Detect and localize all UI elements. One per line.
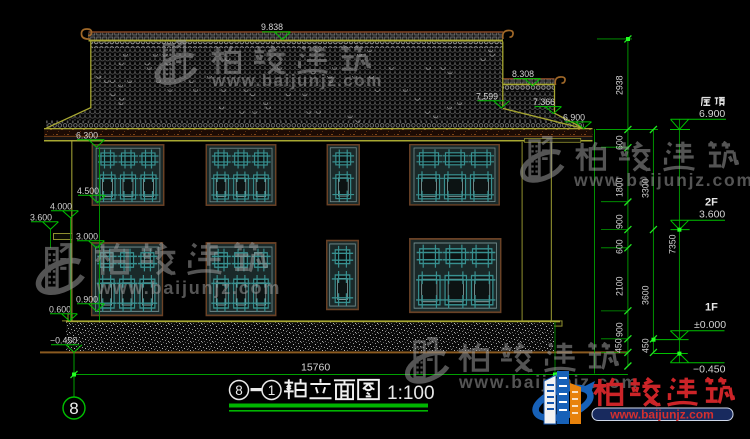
svg-text:6.300: 6.300: [76, 130, 98, 140]
svg-text:7.366: 7.366: [533, 97, 555, 107]
svg-text:4.000: 4.000: [50, 201, 72, 211]
svg-text:3.600: 3.600: [699, 209, 725, 221]
svg-text:4.500: 4.500: [77, 186, 99, 196]
svg-text:900: 900: [615, 214, 625, 229]
svg-text:www.baijunjz.com: www.baijunjz.com: [96, 278, 281, 298]
svg-text:450: 450: [641, 338, 651, 353]
svg-text:6.900: 6.900: [563, 113, 585, 123]
svg-text:0.600: 0.600: [49, 304, 71, 314]
svg-text:450: 450: [614, 338, 624, 353]
svg-text:8.308: 8.308: [512, 69, 534, 79]
svg-text:1: 1: [268, 383, 276, 398]
svg-text:600: 600: [615, 239, 625, 254]
svg-text:9.838: 9.838: [261, 22, 283, 32]
svg-text:3.600: 3.600: [30, 212, 52, 222]
svg-text:−0.450: −0.450: [693, 364, 726, 376]
svg-text:www.baijunjz.com: www.baijunjz.com: [573, 170, 750, 190]
svg-text:8: 8: [235, 383, 243, 398]
svg-text:1:100: 1:100: [387, 383, 435, 404]
svg-text:1F: 1F: [705, 302, 718, 314]
svg-text:7.599: 7.599: [476, 91, 498, 101]
svg-text:0.900: 0.900: [76, 294, 98, 304]
svg-text:8: 8: [69, 399, 78, 418]
svg-text:15760: 15760: [301, 361, 330, 373]
svg-text:3.000: 3.000: [76, 231, 98, 241]
svg-text:3600: 3600: [641, 285, 651, 305]
svg-text:www.baijunjz.com: www.baijunjz.com: [211, 71, 383, 90]
svg-text:6.900: 6.900: [699, 108, 725, 120]
svg-text:±0.000: ±0.000: [694, 319, 726, 331]
svg-text:2100: 2100: [615, 276, 625, 296]
svg-text:2F: 2F: [705, 197, 718, 209]
svg-text:www.baijunjz.com: www.baijunjz.com: [609, 407, 714, 421]
svg-text:2938: 2938: [615, 75, 625, 95]
svg-text:7350: 7350: [668, 234, 678, 254]
svg-text:−0.450: −0.450: [50, 335, 77, 345]
svg-text:900: 900: [615, 322, 625, 337]
